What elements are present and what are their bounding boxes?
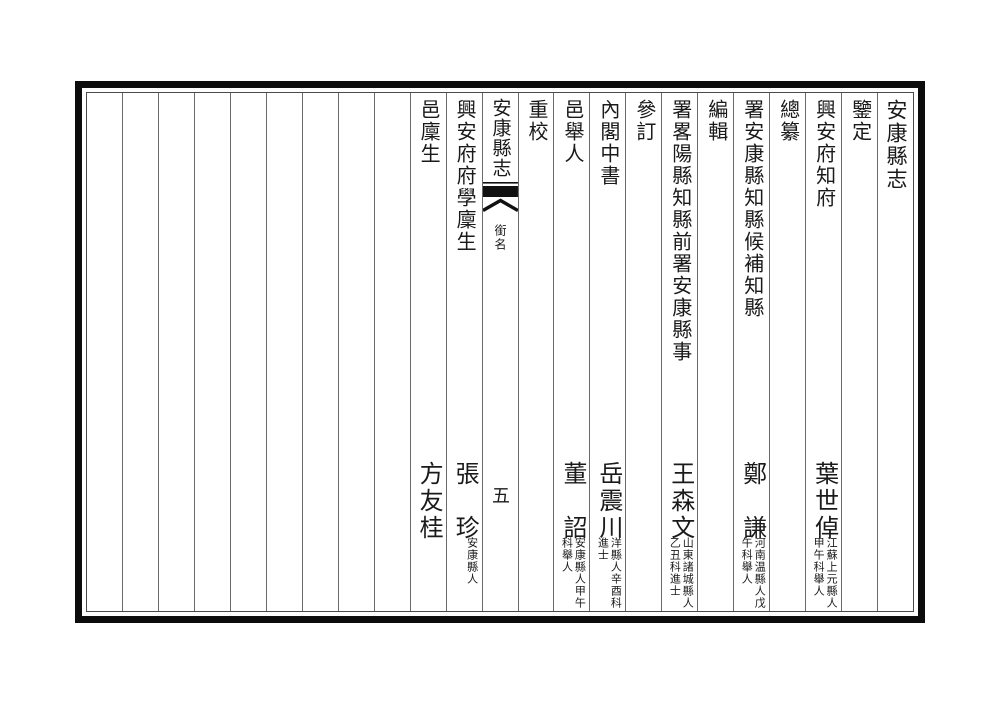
person-annotation: 安康縣人甲午 科舉人: [559, 537, 585, 609]
column-acting-magistrate: 署安康縣知縣候補知縣 鄭 謙 河南温縣人戊 午科舉人: [733, 93, 769, 611]
person-name: 葉世倬: [812, 461, 836, 542]
person-annotation: 河南温縣人戊 午科舉人: [739, 537, 765, 609]
column-fold: 安康縣志 銜名 五: [482, 93, 518, 611]
role-label: 參訂: [634, 99, 654, 143]
columns-area: 安康縣志 鑒定 興安府知府 葉世倬 江蘇上元縣人 甲午科舉人 總纂 署安康縣知縣…: [86, 92, 914, 612]
role-label: 邑舉人: [562, 99, 582, 165]
person-name: 董 詔: [560, 461, 584, 542]
empty-column: [230, 93, 266, 611]
person-name: 鄭 謙: [740, 461, 764, 542]
column-county-juren: 邑舉人 董 詔 安康縣人甲午 科舉人: [553, 93, 589, 611]
annotation-line: 甲午科舉人: [811, 537, 824, 609]
role-label: 內閣中書: [598, 99, 618, 187]
person-annotation: 江蘇上元縣人 甲午科舉人: [811, 537, 837, 609]
person-annotation: 安康縣人: [465, 537, 478, 585]
column-role-canding: 參訂: [625, 93, 661, 611]
annotation-line: 洋縣人辛酉科: [608, 537, 621, 609]
column-role-zongzuan: 總纂: [769, 93, 805, 611]
role-label: 重校: [526, 99, 546, 143]
page-canvas: 安康縣志 鑒定 興安府知府 葉世倬 江蘇上元縣人 甲午科舉人 總纂 署安康縣知縣…: [0, 0, 1000, 706]
person-annotation: 洋縣人辛酉科 進士: [595, 537, 621, 609]
fishtail-icon: [483, 182, 518, 212]
column-prefectural-student: 興安府府學廩生 張 珍 安康縣人: [446, 93, 482, 611]
column-role-bianji: 編輯: [697, 93, 733, 611]
role-label: 署畧陽縣知縣前署安康縣事: [670, 99, 690, 363]
empty-column: [194, 93, 230, 611]
annotation-line: 江蘇上元縣人: [824, 537, 837, 609]
book-title: 安康縣志: [885, 99, 906, 191]
annotation-line: 安康縣人: [465, 537, 478, 585]
column-prefect: 興安府知府 葉世倬 江蘇上元縣人 甲午科舉人: [805, 93, 841, 611]
annotation-line: 乙丑科進士: [667, 537, 680, 609]
person-annotation: 山東諸城縣人 乙丑科進士: [667, 537, 693, 609]
annotation-line: 河南温縣人戊: [752, 537, 765, 609]
page-frame: 安康縣志 鑒定 興安府知府 葉世倬 江蘇上元縣人 甲午科舉人 總纂 署安康縣知縣…: [75, 81, 925, 623]
empty-column: [266, 93, 302, 611]
role-label: 興安府府學廩生: [454, 99, 474, 253]
annotation-line: 午科舉人: [739, 537, 752, 609]
person-name: 王森文: [668, 461, 692, 542]
annotation-line: 安康縣人甲午: [572, 537, 585, 609]
annotation-line: 科舉人: [559, 537, 572, 609]
column-grand-secretariat: 內閣中書 岳震川 洋縣人辛酉科 進士: [589, 93, 625, 611]
person-name: 方友桂: [416, 461, 440, 542]
column-role-jianding: 鑒定: [841, 93, 877, 611]
column-county-student: 邑廩生 方友桂: [410, 93, 446, 611]
page-number: 五: [491, 486, 509, 504]
fold-book-title: 安康縣志: [491, 98, 510, 178]
person-name: 岳震川: [596, 461, 620, 542]
role-label: 鑒定: [850, 99, 870, 143]
role-label: 編輯: [706, 99, 726, 143]
column-role-chongjiao: 重校: [518, 93, 554, 611]
role-label: 署安康縣知縣候補知縣: [742, 99, 762, 319]
empty-column: [122, 93, 158, 611]
role-label: 興安府知府: [814, 99, 834, 209]
empty-column: [374, 93, 410, 611]
empty-column: [158, 93, 194, 611]
empty-column: [338, 93, 374, 611]
column-book-title: 安康縣志: [877, 93, 913, 611]
empty-column: [87, 93, 122, 611]
annotation-line: 山東諸城縣人: [680, 537, 693, 609]
column-lueyang-magistrate: 署畧陽縣知縣前署安康縣事 王森文 山東諸城縣人 乙丑科進士: [661, 93, 697, 611]
fold-section-label: 銜名: [494, 224, 506, 252]
empty-column: [302, 93, 338, 611]
role-label: 邑廩生: [418, 99, 438, 165]
person-name: 張 珍: [452, 461, 476, 542]
role-label: 總纂: [778, 99, 798, 143]
annotation-line: 進士: [595, 537, 608, 609]
